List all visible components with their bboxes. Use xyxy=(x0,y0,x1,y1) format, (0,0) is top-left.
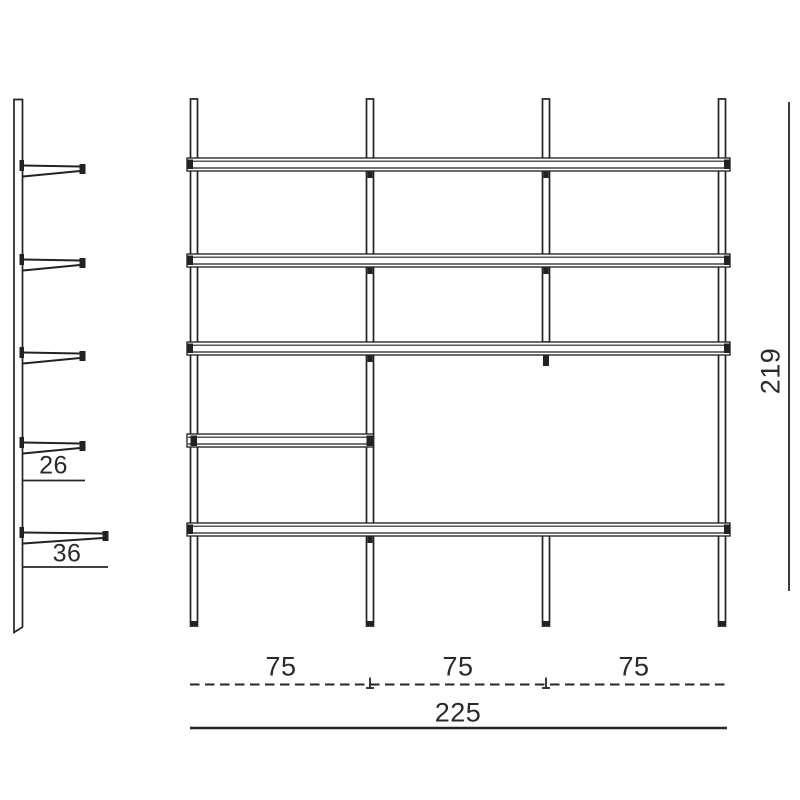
side-post xyxy=(14,100,23,633)
technical-drawing-canvas: 26 36 75 75 75 225 219 xyxy=(0,0,800,800)
post-3 xyxy=(543,99,550,626)
bay-width-label-1: 75 xyxy=(265,652,296,683)
front-elevation-view xyxy=(187,99,730,626)
shelf-row-3 xyxy=(187,342,730,362)
shelving-unit-drawing xyxy=(0,0,800,800)
post-2 xyxy=(367,99,374,626)
dimension-annotations xyxy=(190,102,789,728)
depth-label-36: 36 xyxy=(53,540,82,569)
shelf-row-4 xyxy=(187,434,374,447)
shelf-row-2 xyxy=(187,254,730,274)
depth-label-26: 26 xyxy=(39,452,68,481)
height-label: 219 xyxy=(756,348,787,395)
shelf-row-1 xyxy=(187,158,730,178)
total-width-label: 225 xyxy=(435,698,482,729)
bay-divider-tick-1 xyxy=(366,678,374,690)
bay-divider-tick-2 xyxy=(542,678,550,690)
post-1 xyxy=(191,99,198,626)
shelf-bracket-1 xyxy=(20,160,86,177)
shelf-row-5 xyxy=(187,523,730,543)
bay-width-label-3: 75 xyxy=(618,652,649,683)
shelf-bracket-3 xyxy=(20,347,86,364)
bay-width-label-2: 75 xyxy=(442,652,473,683)
post-4 xyxy=(719,99,726,626)
shelf-bracket-2 xyxy=(20,254,86,271)
post-3-bracket-stub xyxy=(543,355,549,366)
